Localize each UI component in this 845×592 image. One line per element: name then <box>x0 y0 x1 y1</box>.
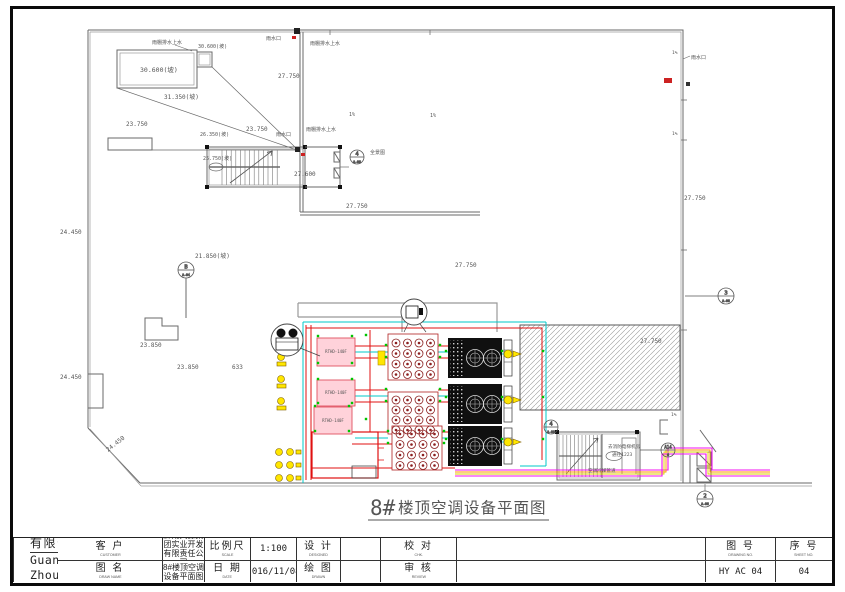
check-label: 校 对 <box>404 542 433 552</box>
title-block: 客 户 CUSTOMER 黔南天源集团实业开发 有限责任公司 比例尺 SCALE… <box>13 537 832 583</box>
design-sublabel: DESIGNED <box>309 552 328 557</box>
drawn-value-cell <box>340 560 380 582</box>
drawname-label-cell: 图 名 DRAW NAME <box>58 560 162 582</box>
review-value-cell <box>456 560 705 582</box>
review-sublabel: REVIEW <box>411 574 425 579</box>
drawn-label: 绘 图 <box>304 564 333 574</box>
design-label: 设 计 <box>304 542 333 552</box>
design-label-cell: 设 计 DESIGNED <box>296 538 340 560</box>
drawname-value: 8#楼顶空调设备平面图 <box>163 563 204 581</box>
scale-label-cell: 比例尺 SCALE <box>204 538 250 560</box>
date-label-cell: 日 期 DATE <box>204 560 250 582</box>
drawing-no-value-cell: HY AC 04 <box>705 560 775 582</box>
scale-value: 1:100 <box>260 544 287 554</box>
sheet-no-label: 序 号 <box>790 542 819 552</box>
customer-label: 客 户 <box>96 542 125 552</box>
drawing-no-label: 图 号 <box>726 542 755 552</box>
customer-sublabel: CUSTOMER <box>100 552 121 557</box>
drawn-label-cell: 绘 图 DRAWN <box>296 560 340 582</box>
company-name-en: Guang ZhouHengya Air Conditioning <box>30 553 58 583</box>
drawname-sublabel: DRAW NAME <box>99 574 121 579</box>
customer-name-line1: 黔南天源集团实业开发 <box>163 538 204 549</box>
drawing-no-sublabel: DRAWING NO. <box>728 552 753 557</box>
drawname-value-cell: 8#楼顶空调设备平面图 <box>162 560 204 582</box>
drawname-label: 图 名 <box>96 564 125 574</box>
drawing-no-label-cell: 图 号 DRAWING NO. <box>705 538 775 560</box>
check-label-cell: 校 对 CHK. <box>380 538 456 560</box>
date-label: 日 期 <box>213 564 242 574</box>
company-name-cn: H' STAR 广州恒雅空调工程有限公司 <box>30 538 58 553</box>
sheet-border-frame <box>10 6 835 586</box>
drawn-sublabel: DRAWN <box>312 574 325 579</box>
drawing-sheet: RTHD-140F RTHD-140F RTHD-140F <box>0 0 845 592</box>
date-sublabel: DATE <box>223 574 232 579</box>
sheet-no-sublabel: SHEET NO. <box>794 552 813 557</box>
review-label-cell: 审 核 REVIEW <box>380 560 456 582</box>
check-value-cell <box>456 538 705 560</box>
customer-label-cell: 客 户 CUSTOMER <box>58 538 162 560</box>
scale-value-cell: 1:100 <box>250 538 296 560</box>
sheet-no-value: 04 <box>799 567 810 577</box>
sheet-no-value-cell: 04 <box>775 560 832 582</box>
drawing-no-value: HY AC 04 <box>719 567 762 577</box>
sheet-no-label-cell: 序 号 SHEET NO. <box>775 538 832 560</box>
check-sublabel: CHK. <box>414 552 423 557</box>
customer-name-line2: 有限责任公司 <box>163 549 204 560</box>
design-value-cell <box>340 538 380 560</box>
scale-sublabel: SCALE <box>222 552 234 557</box>
scale-label: 比例尺 <box>210 542 246 552</box>
date-value-cell: 2016/11/08 <box>250 560 296 582</box>
company-cell: H' STAR 广州恒雅空调工程有限公司 Guang ZhouHengya Ai… <box>13 538 58 582</box>
review-label: 审 核 <box>404 564 433 574</box>
customer-value-cell: 黔南天源集团实业开发 有限责任公司 <box>162 538 204 560</box>
date-value: 2016/11/08 <box>250 567 296 577</box>
